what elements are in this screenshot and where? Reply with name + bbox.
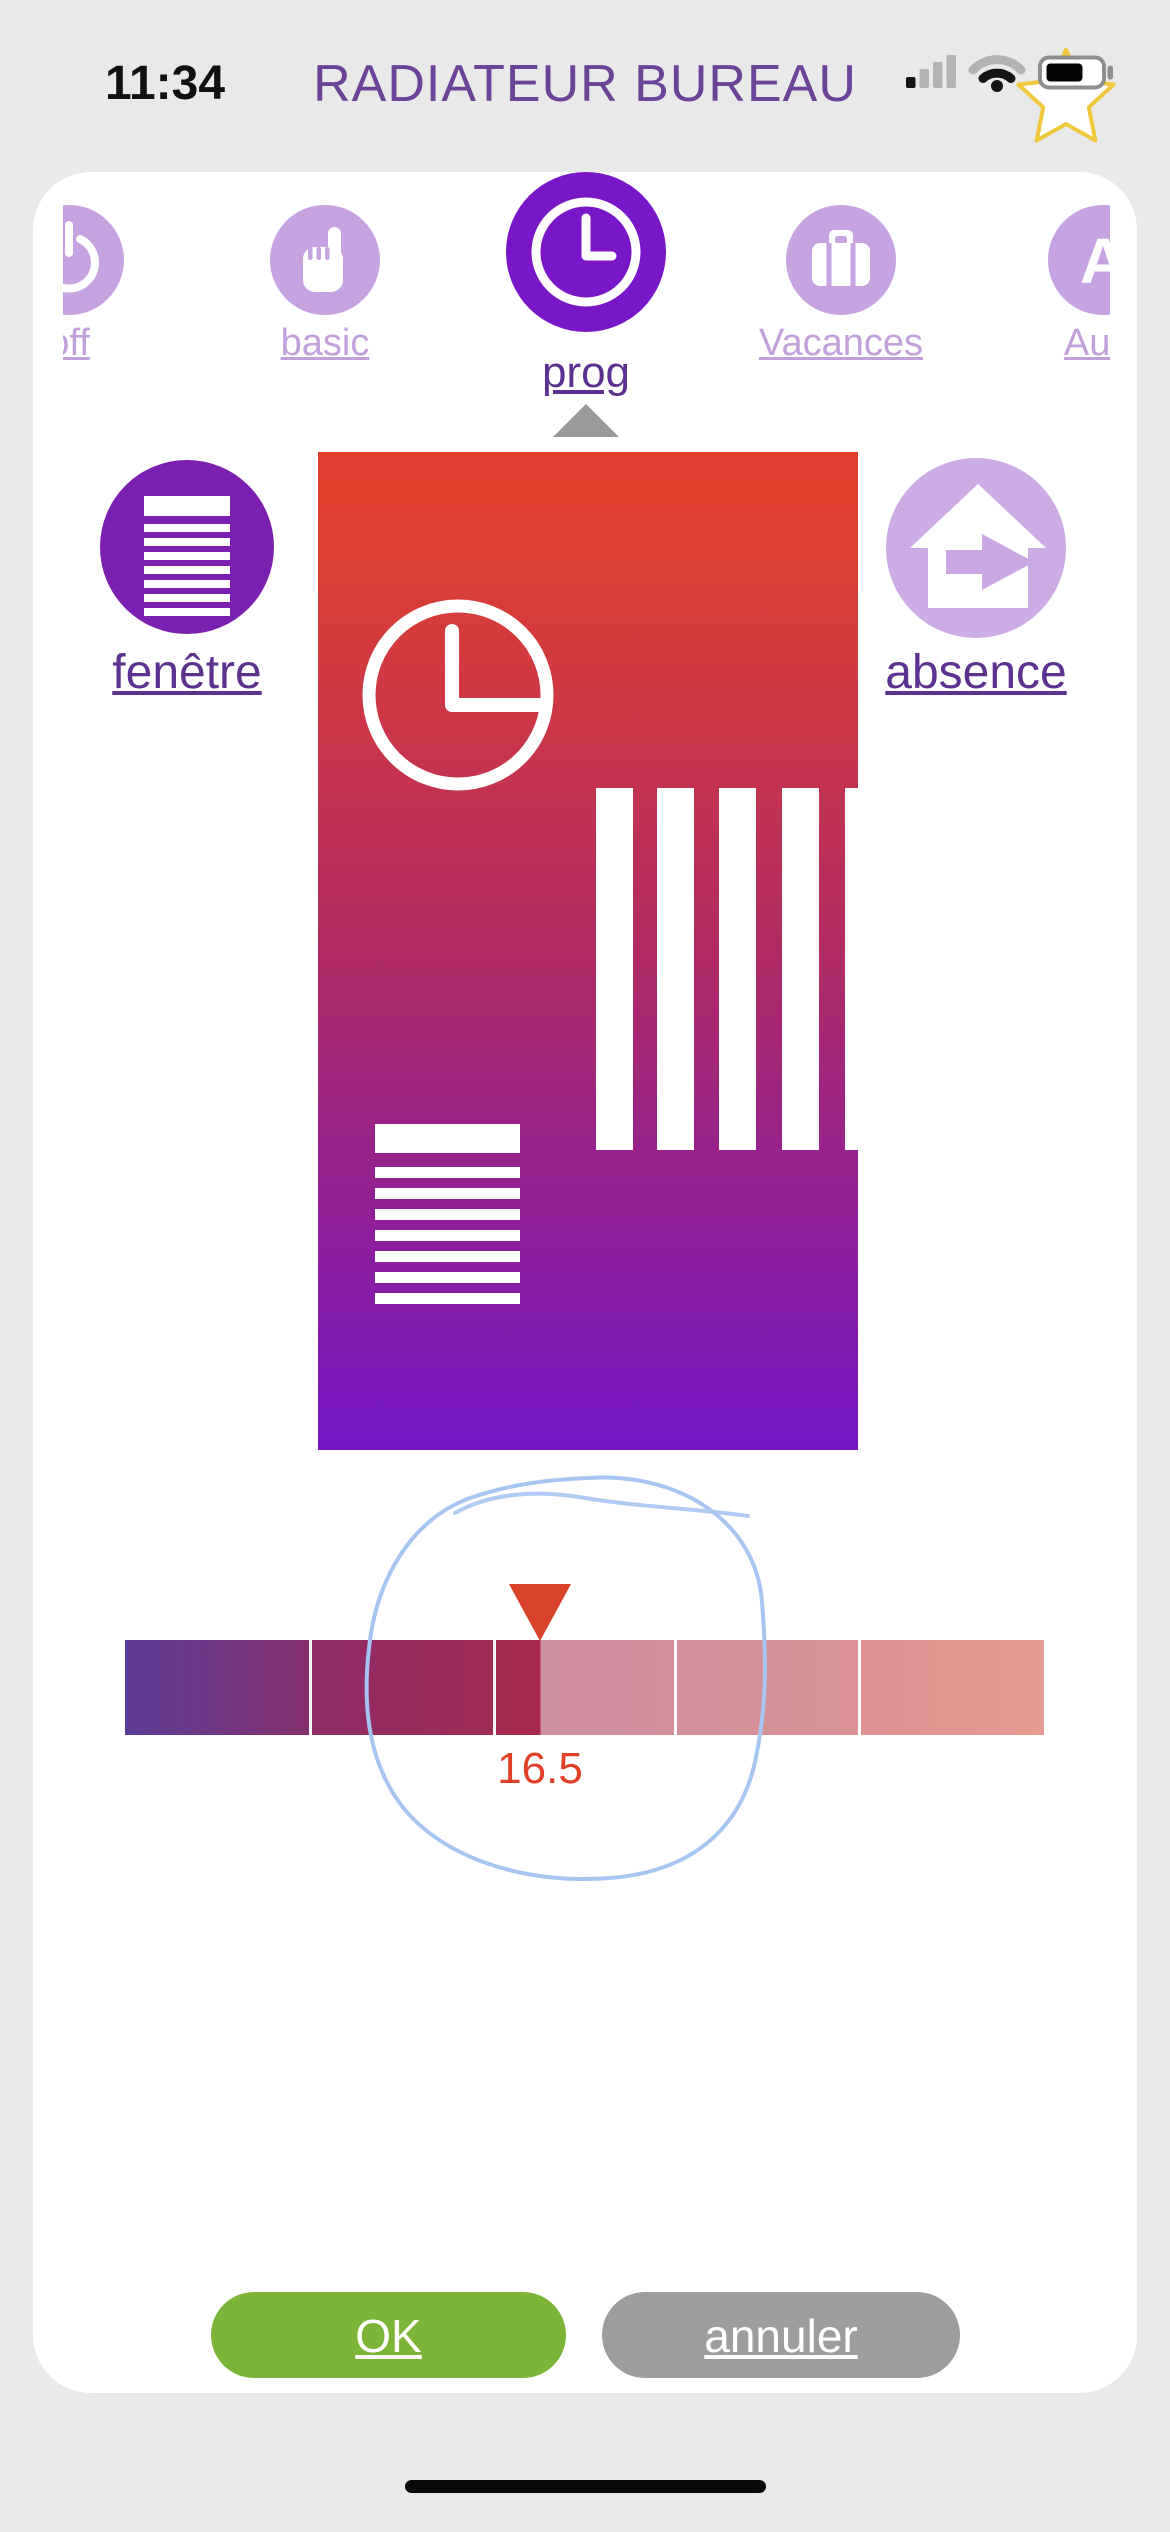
cellular-signal-icon (906, 55, 956, 88)
tab-off-label[interactable]: off (63, 322, 169, 365)
selected-tab-pointer (553, 404, 619, 437)
clock-icon (348, 585, 568, 805)
fenetre-button-label[interactable]: fenêtre (37, 645, 337, 700)
status-icons (890, 40, 1130, 155)
tab-basic-label[interactable]: basic (225, 322, 425, 365)
temperature-slider[interactable] (125, 1640, 1044, 1735)
wifi-icon (973, 60, 1021, 92)
radiator-icon[interactable] (100, 460, 274, 634)
tab-vacances-label[interactable]: Vacances (741, 322, 941, 365)
iphone-screen: 11:34 RADIATEUR BUREAU (0, 0, 1170, 2532)
suitcase-icon (786, 205, 896, 315)
tab-prog-label[interactable]: prog (486, 348, 686, 398)
battery-icon (1040, 58, 1113, 88)
house-exit-icon[interactable] (886, 458, 1066, 638)
svg-text:A: A (1080, 225, 1110, 297)
ok-button[interactable]: OK (211, 2292, 566, 2378)
slider-handle[interactable] (509, 1584, 571, 1641)
cancel-button[interactable]: annuler (602, 2292, 960, 2378)
clock-icon (506, 172, 666, 332)
absence-button-label[interactable]: absence (826, 645, 1126, 700)
letter-a-icon: A (1048, 205, 1110, 315)
prog-mode-preview (318, 452, 858, 1450)
temperature-value: 16.5 (440, 1744, 640, 1794)
tab-auto-label[interactable]: Auto (1003, 322, 1110, 365)
hand-icon (270, 205, 380, 315)
home-indicator[interactable] (405, 2480, 766, 2493)
power-icon (63, 205, 124, 315)
